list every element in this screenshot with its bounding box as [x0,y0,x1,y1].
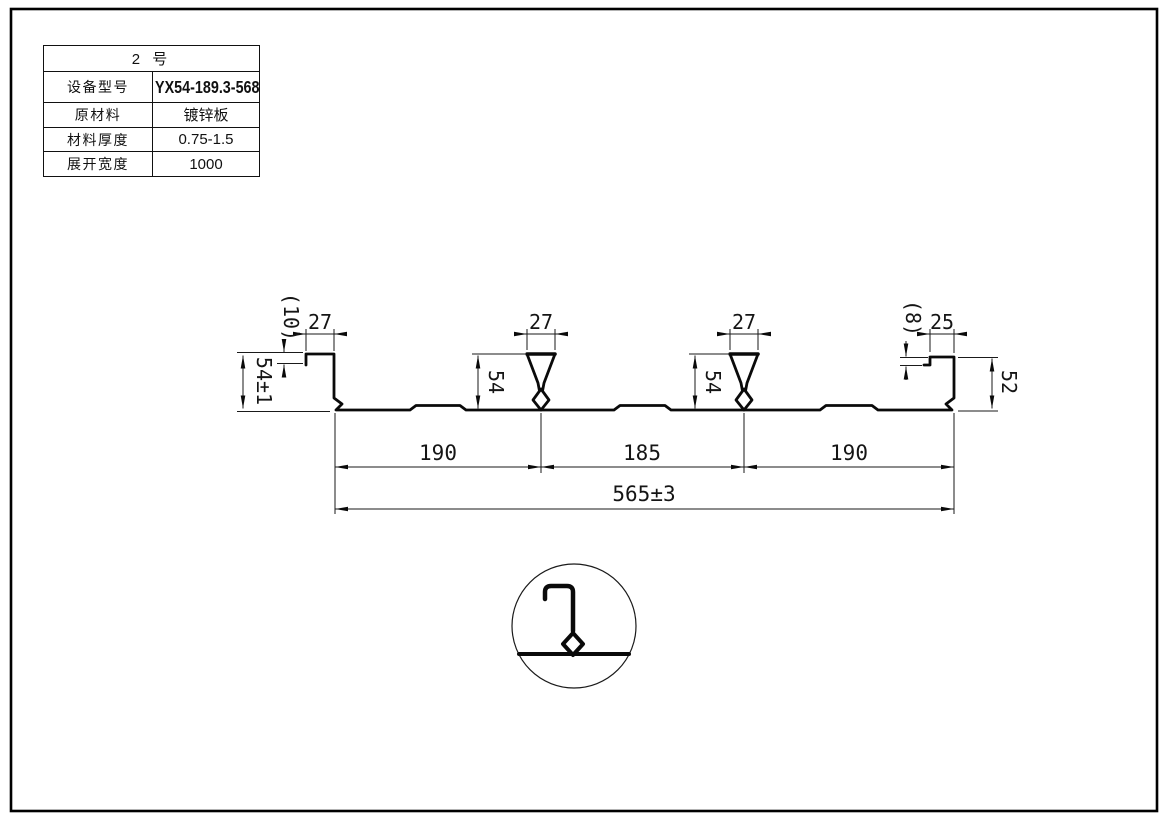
detail-interlock-diamond [563,633,583,655]
dimension-labels: (10) 27 54±1 27 54 27 54 (8) 25 52 190 1… [252,293,1021,506]
field-value: 镀锌板 [153,103,259,127]
dim-right-flange: 25 [930,310,954,334]
dim-rib1-height: 54 [484,370,508,394]
seam-detail [512,564,636,688]
field-value: 1000 [153,152,259,176]
dim-left-flange: 27 [308,310,332,334]
dim-rib1-width: 27 [529,310,553,334]
title-block-row: 设备型号 YX54-189.3-568 [44,72,259,103]
dim-rib2-height: 54 [701,370,725,394]
title-block-row: 展开宽度 1000 [44,152,259,176]
dim-left-lip: (10) [279,293,303,341]
rib-1 [527,354,555,410]
dim-right-lip: (8) [901,300,925,336]
dim-overall-width: 565±3 [612,482,675,506]
dim-pitch-right: 190 [830,441,868,465]
deck-profile-outline [306,354,954,410]
dim-pitch-left: 190 [419,441,457,465]
title-block: 2 号 设备型号 YX54-189.3-568 原材料 镀锌板 材料厚度 0.7… [43,45,260,177]
machine-model: YX54-189.3-568 [155,77,260,98]
field-label: 展开宽度 [44,152,153,176]
detail-hook [545,586,573,631]
field-label: 材料厚度 [44,128,153,152]
title-block-row: 材料厚度 0.75-1.5 [44,128,259,153]
title-block-header: 2 号 [44,46,259,72]
dim-left-height: 54±1 [252,357,276,405]
rib-2 [730,354,758,410]
title-block-row: 原材料 镀锌板 [44,103,259,128]
field-label: 设备型号 [44,72,153,102]
dim-right-height: 52 [997,370,1021,394]
field-label: 原材料 [44,103,153,127]
drawing-sheet: (10) 27 54±1 27 54 27 54 (8) 25 52 190 1… [0,0,1169,827]
dim-rib2-width: 27 [732,310,756,334]
field-value: YX54-189.3-568 [153,72,282,102]
field-value: 0.75-1.5 [153,128,259,152]
dim-pitch-center: 185 [623,441,661,465]
